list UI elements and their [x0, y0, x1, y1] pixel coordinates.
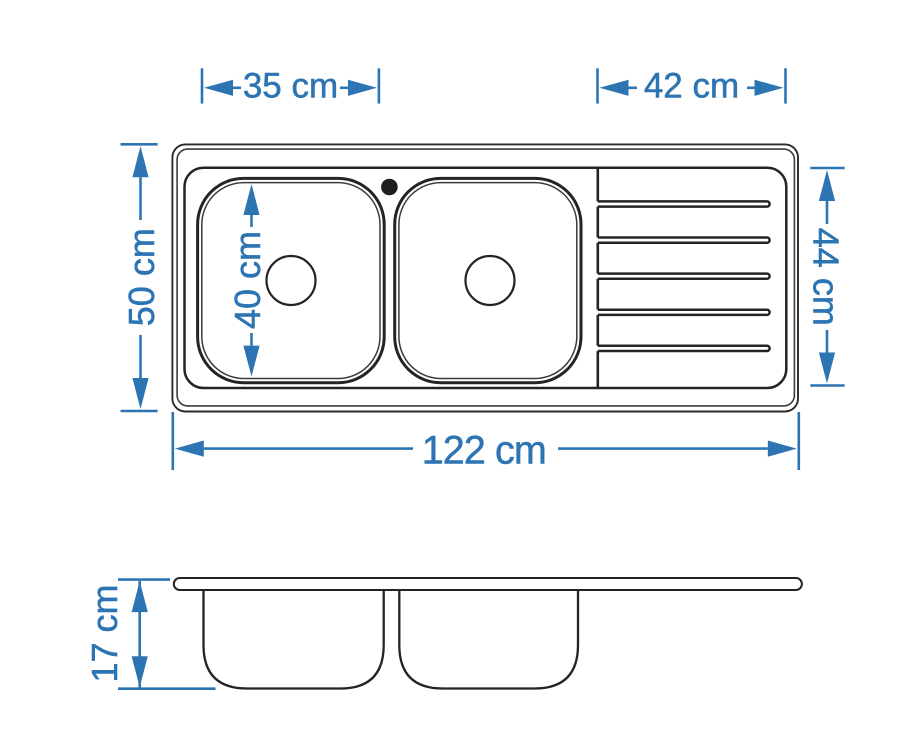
svg-text:122 cm: 122 cm — [422, 428, 546, 472]
svg-text:42 cm: 42 cm — [644, 67, 739, 106]
svg-text:17 cm: 17 cm — [84, 584, 125, 682]
svg-text:35 cm: 35 cm — [243, 67, 338, 106]
svg-text:40 cm: 40 cm — [227, 231, 268, 329]
svg-text:44 cm: 44 cm — [805, 228, 846, 326]
svg-text:50 cm: 50 cm — [121, 228, 162, 326]
